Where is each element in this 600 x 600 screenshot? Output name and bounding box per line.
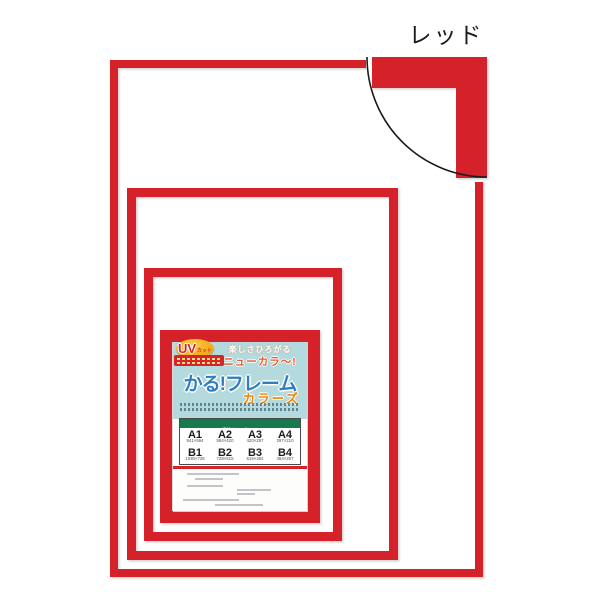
insert-highlight-text: ニューカラ〜! [217, 354, 303, 369]
size-cell: B1 1030×728 [180, 446, 210, 464]
size-cell: B3 515×364 [240, 446, 270, 464]
insert-fine-print-teal [180, 403, 300, 413]
size-cell: A1 841×594 [180, 428, 210, 446]
size-table-header: 規格サイズ(mm) [180, 419, 300, 428]
size-cell: A4 297×210 [270, 428, 300, 446]
insert-red-divider [173, 466, 307, 469]
size-table-row-a: A1 841×594 A2 594×420 A3 420×297 A4 297×… [180, 428, 300, 446]
uv-badge-suffix: カット [197, 347, 212, 354]
product-insert-label: UV カット 楽しさひろがる ニューカラ〜! かる!フレーム カラーズ 規格サイ… [173, 342, 308, 512]
product-photo: レッド UV カット 楽しさひろがる ニューカラ〜! かる!フレーム [0, 0, 600, 600]
size-cell: B2 728×515 [210, 446, 240, 464]
size-table-row-b: B1 1030×728 B2 728×515 B3 515×364 B4 364… [180, 446, 300, 464]
uv-badge-text: UV [178, 342, 196, 355]
uv-badge-caption [174, 355, 224, 366]
size-cell: A2 594×420 [210, 428, 240, 446]
size-cell: B4 364×257 [270, 446, 300, 464]
size-table: 規格サイズ(mm) A1 841×594 A2 594×420 A3 420×2… [179, 418, 301, 465]
size-cell: A3 420×297 [240, 428, 270, 446]
uv-cut-badge: UV カット [174, 339, 222, 366]
